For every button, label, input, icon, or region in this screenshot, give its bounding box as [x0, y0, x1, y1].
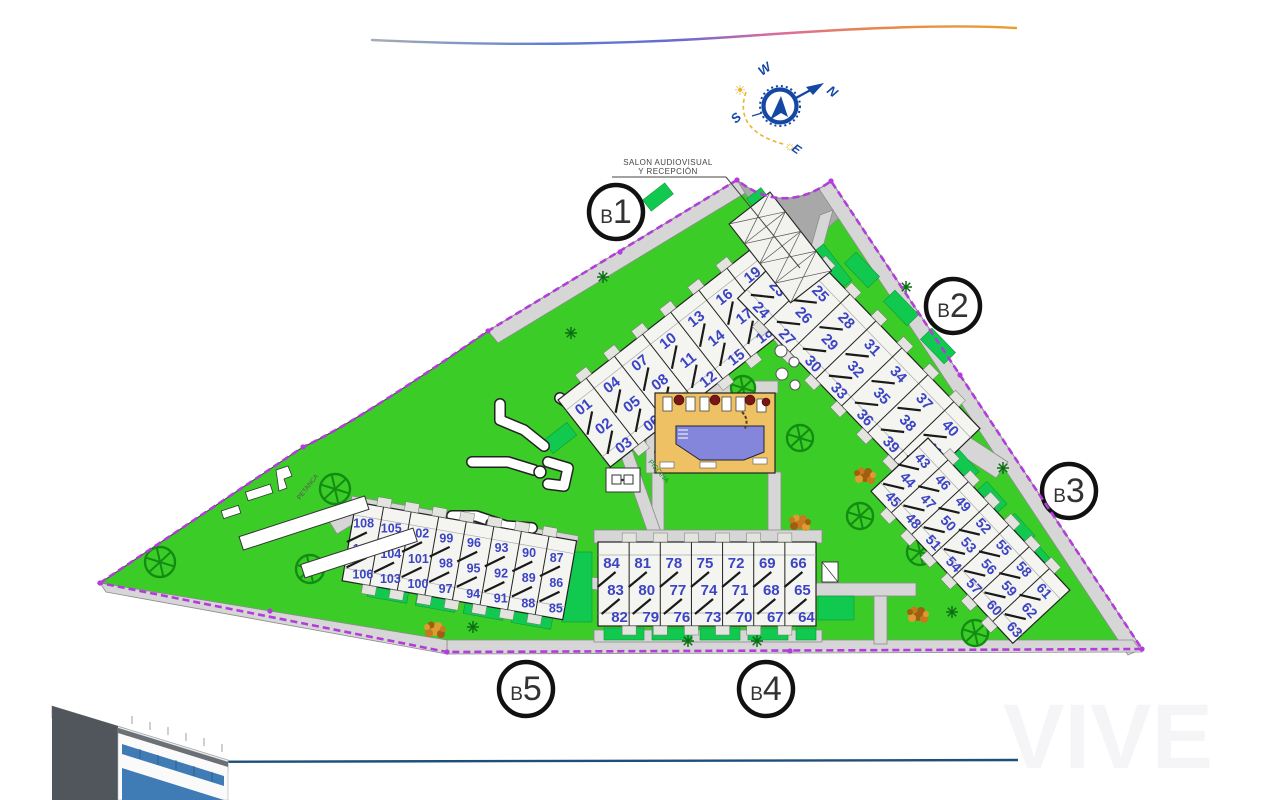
unit-number: 75: [697, 555, 714, 572]
terrace: [684, 533, 698, 542]
unit-number: 100: [408, 577, 429, 591]
terrace: [747, 626, 761, 635]
unit-number: 69: [759, 555, 776, 572]
unit-number: 76: [674, 609, 691, 626]
unit-number: 79: [642, 609, 659, 626]
site-area: 0102030405060708091011121314151617181920…: [97, 158, 1144, 716]
unit-number: 67: [767, 609, 784, 626]
decorative-top-line: [372, 26, 1016, 43]
terrace: [622, 626, 636, 635]
unit-number: 84: [603, 555, 620, 572]
compass-w: W: [755, 58, 775, 78]
unit-number: 85: [549, 601, 563, 615]
compass-s: S: [728, 109, 745, 126]
unit-number: 83: [607, 582, 624, 599]
unit-number: 94: [466, 587, 480, 601]
terrace: [747, 533, 761, 542]
terrace: [716, 533, 730, 542]
bush-icon: [751, 635, 763, 647]
logo-building: [52, 706, 228, 800]
unit-number: 95: [467, 561, 481, 575]
hedge: [818, 596, 854, 620]
unit-number: 80: [638, 582, 655, 599]
unit-number: 72: [728, 555, 745, 572]
bush-icon: [682, 635, 694, 647]
unit-number: 77: [670, 582, 687, 599]
terrace: [653, 533, 667, 542]
golf-ball: [534, 466, 546, 478]
walk-pool-down: [768, 472, 781, 534]
unit-number: 101: [408, 552, 429, 566]
compass: ☀ ☼ N W S E: [728, 58, 842, 157]
unit-number: 91: [494, 592, 508, 606]
pool-area: [655, 393, 775, 473]
unit-number: 87: [550, 551, 564, 565]
unit-number: 93: [495, 541, 509, 555]
unit-number: 106: [352, 567, 373, 581]
unit-number: 65: [794, 582, 811, 599]
unit-number: 71: [732, 582, 749, 599]
bush-icon: [997, 462, 1009, 474]
unit-number: 86: [549, 576, 563, 590]
walk-b4-east: [816, 583, 916, 596]
bush-icon: [597, 271, 609, 283]
unit-number: 97: [439, 582, 453, 596]
bush-icon: [946, 606, 958, 618]
unit-number: 90: [522, 546, 536, 560]
walk-b4-stub: [874, 596, 887, 644]
terrace: [716, 626, 730, 635]
tree-icon: [847, 503, 873, 529]
site-plan: VIVE 010203040506: [0, 0, 1280, 800]
utility-box-2: [822, 562, 838, 582]
reception-label-line2: Y RECEPCIÓN: [638, 167, 697, 176]
tree-icon: [320, 474, 350, 504]
sun-filled-icon: ☀: [734, 82, 747, 98]
utility-box: [606, 468, 640, 492]
hedge: [796, 628, 816, 640]
terrace: [778, 626, 792, 635]
unit-number: 73: [705, 609, 722, 626]
tree-icon: [787, 425, 813, 451]
site-plan-page: VIVE 010203040506: [0, 0, 1280, 800]
compass-n: N: [824, 83, 841, 101]
unit-number: 70: [736, 609, 753, 626]
terrace: [622, 533, 636, 542]
hedge: [643, 183, 674, 211]
unit-number: 68: [763, 582, 780, 599]
tree-icon: [145, 547, 175, 577]
unit-number: 103: [380, 572, 401, 586]
unit-number: 81: [634, 555, 651, 572]
unit-number: 88: [521, 597, 535, 611]
unit-number: 74: [701, 582, 718, 599]
bush-icon: [467, 621, 479, 633]
unit-number: 92: [494, 566, 508, 580]
unit-number: 78: [666, 555, 683, 572]
unit-number: 99: [439, 531, 453, 545]
terrace: [653, 626, 667, 635]
unit-number: 98: [439, 557, 453, 571]
terrace: [778, 533, 792, 542]
watermark: VIVE: [1003, 686, 1213, 788]
building-b4: 8483828180797877767574737271706968676665…: [598, 533, 816, 635]
unit-number: 96: [467, 536, 481, 550]
terrace: [684, 626, 698, 635]
unit-number: 89: [522, 571, 536, 585]
unit-number: 108: [353, 517, 374, 531]
unit-number: 66: [790, 555, 807, 572]
unit-number: 82: [611, 609, 628, 626]
reception-label-line1: SALON AUDIOVISUAL: [623, 158, 713, 167]
bush-icon: [565, 327, 577, 339]
north-arrowhead: [806, 83, 824, 95]
unit-number: 64: [798, 609, 815, 626]
